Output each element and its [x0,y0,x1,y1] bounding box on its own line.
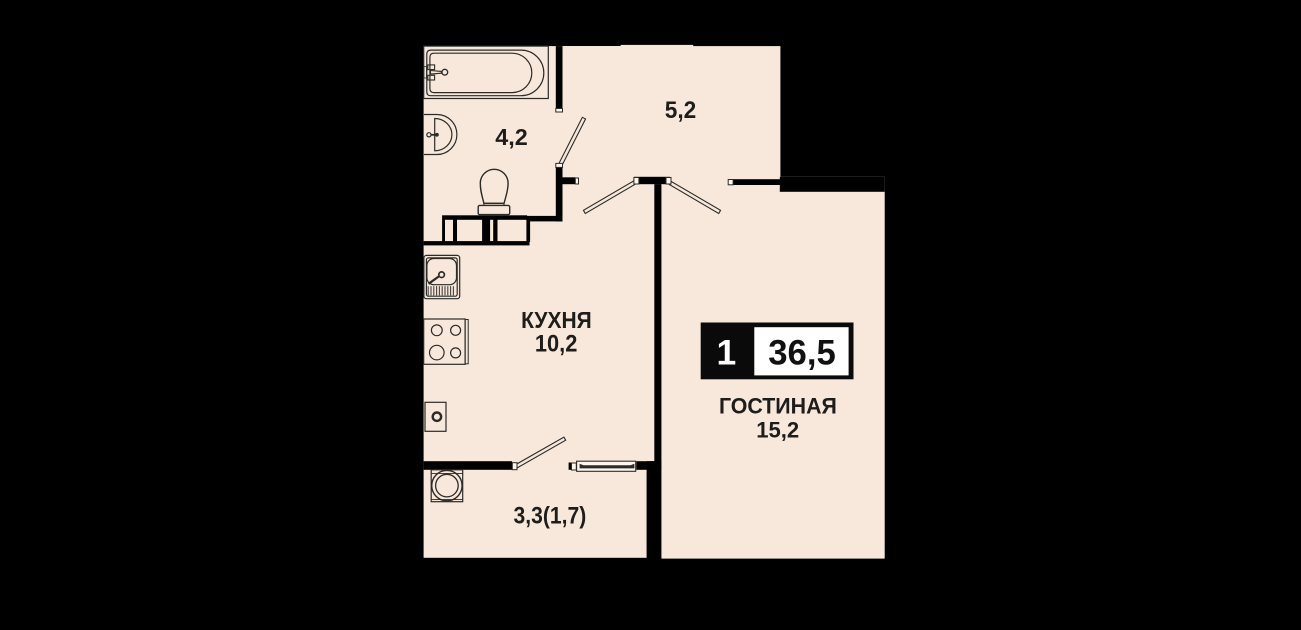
svg-text:10,2: 10,2 [535,331,578,358]
svg-text:ГОСТИНАЯ: ГОСТИНАЯ [719,394,837,419]
svg-text:3,3(1,7): 3,3(1,7) [514,503,587,530]
svg-text:5,2: 5,2 [665,97,697,124]
svg-text:1: 1 [717,333,737,373]
svg-text:КУХНЯ: КУХНЯ [521,307,592,333]
svg-text:36,5: 36,5 [768,333,836,373]
svg-text:15,2: 15,2 [756,418,799,443]
svg-text:4,2: 4,2 [495,124,528,150]
